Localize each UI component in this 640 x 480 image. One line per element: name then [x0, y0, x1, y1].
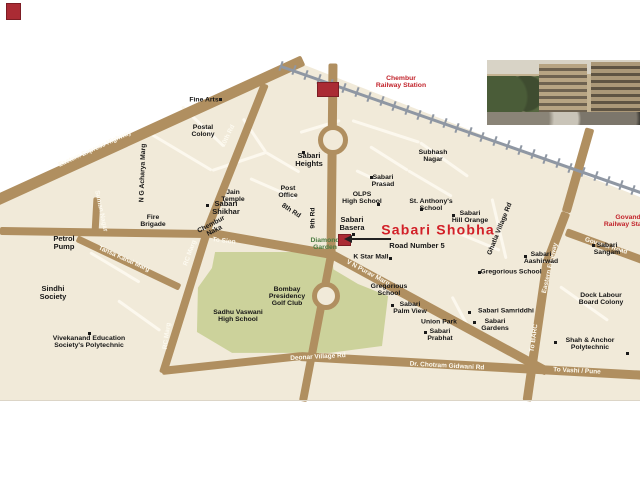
place-label-line: Sabari [481, 318, 509, 325]
poi-marker [592, 244, 595, 247]
poi-marker [626, 352, 629, 355]
place-label-line: Society's Polytechnic [53, 342, 125, 349]
place-label-line: K Star Mall [353, 253, 388, 260]
roundabout [312, 282, 340, 310]
project-photo [487, 60, 640, 125]
poi-marker [219, 98, 222, 101]
place-label-line: Golf Club [269, 301, 305, 308]
poi-marker [473, 321, 476, 324]
place-label-line: Sabari Samriddhi [478, 307, 534, 314]
location-map: Eastern Express Highway10th RdSuman Naga… [0, 0, 640, 480]
place-label: Vivekanand EducationSociety's Polytechni… [53, 335, 125, 349]
place-label: St. Anthony'sSchool [409, 198, 452, 212]
place-label: SubhashNagar [419, 149, 448, 163]
place-label-line: Basera [339, 224, 364, 232]
place-label-line: Prasad [372, 181, 395, 188]
poi-marker [391, 304, 394, 307]
place-label: SabariPrasad [372, 174, 395, 188]
place-label: PetrolPump [53, 235, 74, 251]
place-label: PostOffice [278, 185, 297, 199]
site-arrow-line [352, 238, 391, 240]
place-label: SabariHeights [295, 152, 323, 168]
place-label-line: Sabari [393, 301, 427, 308]
place-label-line: Sabari [524, 251, 558, 258]
place-label-line: High School [342, 198, 382, 205]
place-label-line: Sabari [427, 328, 452, 335]
poi-marker [302, 151, 305, 154]
place-label: SabariPrabhat [427, 328, 452, 342]
place-label-line: Railway Station [376, 82, 426, 89]
place-label-line: Bombay [269, 286, 305, 293]
place-label: K Star Mall [353, 253, 388, 260]
place-label-line: Presidency [269, 293, 305, 300]
place-label-line: Prabhat [427, 335, 452, 342]
place-label: PostalColony [191, 124, 214, 138]
place-label: Road Number 5 [389, 242, 444, 250]
place-label-line: Heights [295, 160, 323, 168]
place-label-line: Sabari [452, 210, 488, 217]
place-label-line: Subhash [419, 149, 448, 156]
place-label: SabariAashirwad [524, 251, 558, 265]
place-label: DiamondGarden [310, 237, 339, 251]
place-label-line: Gregorious School [480, 268, 541, 275]
place-label-line: Union Park [421, 318, 457, 325]
place-label-line: Govandi [604, 214, 640, 221]
place-label-line: Nagar [419, 156, 448, 163]
place-label: SabariBasera [339, 216, 364, 232]
place-label-line: Shikhar [212, 208, 240, 216]
place-label-line: Sadhu Vaswani [213, 309, 262, 316]
place-label-line: Post [278, 185, 297, 192]
place-label-line: Diamond [310, 237, 339, 244]
place-label: GovandiRailway Station [604, 214, 640, 228]
place-label-line: Fire [140, 214, 165, 221]
place-label-line: Sabari [372, 174, 395, 181]
place-label: Sadhu VaswaniHigh School [213, 309, 262, 323]
chembur-station-box [317, 82, 339, 97]
place-label-line: 9th Rd [309, 207, 316, 228]
poi-marker [420, 208, 423, 211]
place-label: ChemburRailway Station [376, 75, 426, 89]
place-label: FireBrigade [140, 214, 165, 228]
place-label-line: School [371, 290, 408, 297]
place-label-line: Sabari Shobha [381, 223, 495, 238]
place-label: Sabari Samriddhi [478, 307, 534, 314]
place-label-line: Pump [53, 243, 74, 251]
poi-marker [377, 203, 380, 206]
roundabout [318, 125, 348, 155]
place-label: SindhiSociety [40, 285, 67, 301]
poi-marker [88, 332, 91, 335]
place-label-line: Polytechnic [566, 344, 615, 351]
poi-marker [352, 233, 355, 236]
photo-building-left [539, 64, 587, 114]
place-label: 9th Rd [309, 207, 316, 228]
poi-marker [424, 331, 427, 334]
place-label-line: Society [40, 293, 67, 301]
place-label-line: Brigade [140, 221, 165, 228]
poi-marker [554, 341, 557, 344]
place-label: BombayPresidencyGolf Club [269, 286, 305, 308]
photo-building-right [591, 62, 640, 114]
place-label: SabariShikhar [212, 200, 240, 216]
place-label: Dock LabourBoard Colony [579, 292, 624, 306]
place-label-line: Palm View [393, 308, 427, 315]
poi-marker [524, 255, 527, 258]
photo-street-cars [487, 112, 640, 125]
place-label-line: Fine Arts [189, 96, 218, 103]
place-label-line: Vivekanand Education [53, 335, 125, 342]
logo-mark [6, 3, 21, 20]
place-label-line: Garden [310, 244, 339, 251]
place-label: Gregorious School [480, 268, 541, 275]
place-label-line: Dock Labour [579, 292, 624, 299]
place-label-line: High School [213, 316, 262, 323]
place-label-line: Office [278, 192, 297, 199]
place-label-line: OLPS [342, 191, 382, 198]
place-label: SabariPalm View [393, 301, 427, 315]
place-label-line: School [409, 205, 452, 212]
place-label: GregoriousSchool [371, 283, 408, 297]
poi-marker [370, 176, 373, 179]
place-label: OLPSHigh School [342, 191, 382, 205]
site-arrow-head [344, 235, 352, 243]
poi-marker [389, 257, 392, 260]
place-label: Union Park [421, 318, 457, 325]
poi-marker [468, 311, 471, 314]
place-label-line: Colony [191, 131, 214, 138]
place-label-line: Sabari [594, 242, 620, 249]
map-bottom-edge [0, 400, 640, 401]
place-label-line: Gardens [481, 325, 509, 332]
place-label-line: Shah & Anchor [566, 337, 615, 344]
place-label-line: Road Number 5 [389, 242, 444, 250]
place-label: SabariSangam [594, 242, 620, 256]
poi-marker [452, 214, 455, 217]
place-label-line: Chembur [376, 75, 426, 82]
place-label: Shah & AnchorPolytechnic [566, 337, 615, 351]
place-label-line: St. Anthony's [409, 198, 452, 205]
place-label-line: Jain [221, 189, 244, 196]
place-label-line: Gregorious [371, 283, 408, 290]
place-label: SabariGardens [481, 318, 509, 332]
place-label: Fine Arts [189, 96, 218, 103]
poi-marker [206, 204, 209, 207]
place-label-line: Sangam [594, 249, 620, 256]
place-label-line: Railway Station [604, 221, 640, 228]
place-label-line: Aashirwad [524, 258, 558, 265]
place-label: Sabari Shobha [381, 223, 495, 238]
place-label-line: Postal [191, 124, 214, 131]
poi-marker [478, 271, 481, 274]
place-label-line: Board Colony [579, 299, 624, 306]
